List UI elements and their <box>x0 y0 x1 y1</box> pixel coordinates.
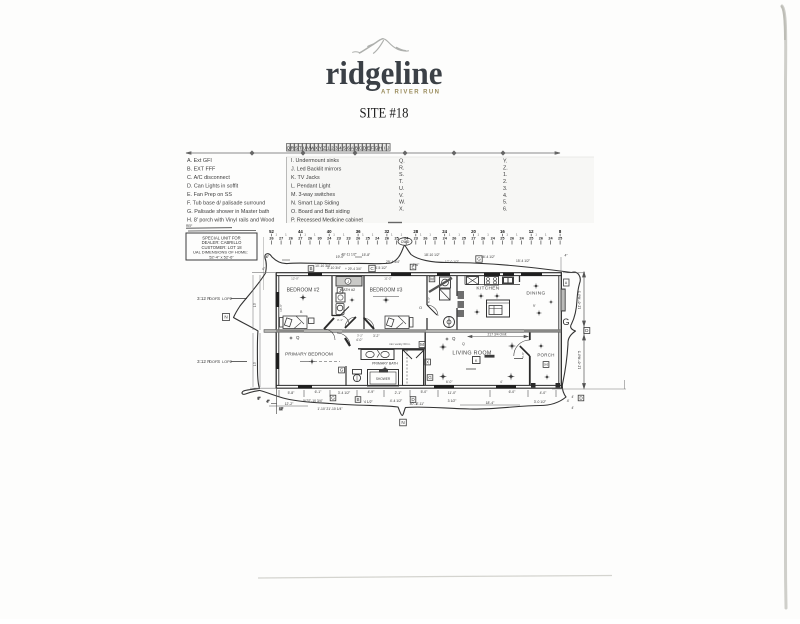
svg-text:6'-0": 6'-0" <box>446 380 453 384</box>
svg-text:26: 26 <box>308 236 312 240</box>
svg-text:I. Undermount sinks: I. Undermount sinks <box>291 158 339 164</box>
svg-text:O: O <box>419 305 422 310</box>
svg-text:E. Fan Prep on SS: E. Fan Prep on SS <box>187 192 232 198</box>
svg-text:15'-8": 15'-8" <box>362 253 371 257</box>
svg-text:J: J <box>347 280 349 284</box>
svg-text:27: 27 <box>279 236 283 240</box>
svg-text:AT RIVER RUN: AT RIVER RUN <box>381 90 441 96</box>
svg-text:4'-4 1/2": 4'-4 1/2" <box>390 399 403 403</box>
svg-text:13': 13' <box>253 303 257 308</box>
svg-text:4': 4' <box>572 395 575 399</box>
svg-text:3'-1": 3'-1" <box>337 318 343 322</box>
svg-text:A. Ext GFI: A. Ext GFI <box>187 158 212 164</box>
svg-text:G: G <box>331 396 335 401</box>
svg-text:6.: 6. <box>503 206 508 212</box>
svg-text:12: 12 <box>529 229 534 234</box>
svg-text:4.: 4. <box>503 193 508 199</box>
svg-text:L. Pendant Light: L. Pendant Light <box>291 184 331 190</box>
svg-text:X.: X. <box>399 206 404 212</box>
svg-text:I: I <box>384 146 385 151</box>
svg-text:5'-8": 5'-8" <box>288 391 296 395</box>
svg-text:H: H <box>544 362 547 367</box>
svg-text:H: H <box>379 146 382 151</box>
svg-text:+ 29'-4 3/4": + 29'-4 3/4" <box>345 267 363 271</box>
svg-text:P. Recessed Medicine cabinet: P. Recessed Medicine cabinet <box>291 218 363 224</box>
svg-text:H. 8' porch with Vinyl rails a: H. 8' porch with Vinyl rails and Wood <box>187 218 274 224</box>
svg-text:5'-0": 5'-0" <box>421 390 429 394</box>
svg-text:5/'37'-10 3/4": 5/'37'-10 3/4" <box>303 399 323 403</box>
svg-text:T: T <box>299 146 302 151</box>
svg-text:23: 23 <box>346 236 350 240</box>
svg-text:11'-2": 11'-2" <box>384 277 391 281</box>
svg-text:C. A/C disconnect: C. A/C disconnect <box>187 175 230 181</box>
svg-text:SHOWER: SHOWER <box>376 377 391 381</box>
svg-text:4': 4' <box>567 399 570 403</box>
svg-text:N. Smart Lap Siding: N. Smart Lap Siding <box>291 201 339 207</box>
svg-text:26: 26 <box>289 236 293 240</box>
svg-text:12'-2": 12'-2" <box>285 402 294 406</box>
svg-text:S: S <box>217 359 220 364</box>
svg-text:24: 24 <box>442 229 447 234</box>
svg-text:30: 30 <box>317 236 321 240</box>
svg-text:O. Board and Batt siding: O. Board and Batt siding <box>291 209 350 215</box>
svg-text:S.: S. <box>399 172 404 178</box>
svg-text:25: 25 <box>366 236 370 240</box>
svg-text:R: R <box>291 146 294 151</box>
svg-text:F. Tub base d/ palisade surrou: F. Tub base d/ palisade surround <box>187 201 265 207</box>
svg-text:40: 40 <box>327 229 332 234</box>
svg-text:S: S <box>217 296 220 301</box>
svg-text:4'-0": 4'-0" <box>540 391 548 395</box>
svg-text:CWD: CWD <box>401 240 410 244</box>
svg-text:18'-4": 18'-4" <box>486 401 495 405</box>
svg-text:C: C <box>359 146 362 151</box>
svg-text:SITE #18: SITE #18 <box>360 106 409 122</box>
svg-text:G: G <box>428 375 432 380</box>
svg-text:Q: Q <box>462 342 465 346</box>
svg-text:S: S <box>295 146 298 151</box>
svg-text:10'-6": 10'-6" <box>279 304 283 312</box>
svg-text:11'-6" Ref 5: 11'-6" Ref 5 <box>578 291 582 309</box>
svg-text:25: 25 <box>558 236 562 240</box>
svg-text:26: 26 <box>423 236 427 240</box>
svg-text:A: A <box>351 146 354 151</box>
svg-text:B: B <box>356 397 359 402</box>
svg-text:36: 36 <box>356 229 361 234</box>
svg-text:3'-0 1/2": 3'-0 1/2" <box>534 400 547 404</box>
svg-text:M: M <box>430 277 434 282</box>
svg-text:2.: 2. <box>503 179 508 185</box>
svg-text:12'-0": 12'-0" <box>291 277 299 281</box>
svg-text:23: 23 <box>414 236 418 240</box>
svg-text:2'-1": 2'-1" <box>395 391 403 395</box>
svg-text:Q.: Q. <box>399 159 405 165</box>
svg-text:KITCHEN: KITCHEN <box>476 286 499 292</box>
svg-text:8": 8" <box>258 397 261 401</box>
svg-text:16: 16 <box>500 229 505 234</box>
svg-text:U: U <box>303 146 306 151</box>
svg-text:3'-10 3/4": 3'-10 3/4" <box>327 266 342 270</box>
svg-text:16'-4 1/2": 16'-4 1/2" <box>481 255 496 259</box>
svg-text:N: N <box>401 420 404 425</box>
svg-text:29'-4 3/4": 29'-4 3/4" <box>386 260 401 264</box>
svg-text:52: 52 <box>269 229 274 234</box>
svg-text:M. 3-way switches: M. 3-way switches <box>291 192 335 198</box>
svg-text:X: X <box>315 146 318 151</box>
svg-text:52'-4" x 52'-6": 52'-4" x 52'-6" <box>209 254 234 259</box>
svg-text:4'-5 1/2": 4'-5 1/2" <box>375 266 388 270</box>
svg-text:26: 26 <box>385 236 389 240</box>
svg-text:25: 25 <box>500 236 504 240</box>
svg-text:LOPE: LOPE <box>222 360 233 364</box>
svg-text:Z.: Z. <box>503 165 508 171</box>
svg-text:G. Palisade shower in Master b: G. Palisade shower in Master bath <box>187 209 269 215</box>
svg-text:6'-1": 6'-1" <box>315 390 323 394</box>
svg-text:E: E <box>367 146 370 151</box>
svg-text:217 3/4 Omit: 217 3/4 Omit <box>488 333 507 337</box>
svg-text:DINING: DINING <box>526 291 545 297</box>
svg-text:Z: Z <box>323 146 326 151</box>
svg-text:25: 25 <box>529 236 533 240</box>
svg-text:J: J <box>387 146 389 151</box>
svg-text:26: 26 <box>269 236 273 240</box>
svg-text:T.: T. <box>399 179 403 185</box>
svg-text:REF: REF <box>186 224 192 228</box>
svg-text:V.: V. <box>399 193 404 199</box>
svg-text:20: 20 <box>471 229 476 234</box>
svg-text:4'-9": 4'-9" <box>368 390 376 394</box>
svg-text:K. TV Jacks: K. TV Jacks <box>291 175 320 181</box>
svg-text:B: B <box>355 146 358 151</box>
svg-text:6'-8": 6'-8" <box>521 352 525 358</box>
svg-text:B. EXT FFF: B. EXT FFF <box>187 167 216 173</box>
svg-text:12': 12' <box>279 407 284 411</box>
svg-text:5'-6": 5'-6" <box>427 297 431 303</box>
svg-text:4'-0": 4'-0" <box>356 338 363 342</box>
svg-text:26: 26 <box>539 236 543 240</box>
svg-text:13': 13' <box>253 362 257 367</box>
svg-text:11'-6" Ref 5: 11'-6" Ref 5 <box>578 351 582 369</box>
svg-text:26: 26 <box>510 236 514 240</box>
svg-text:'4 1/2": '4 1/2" <box>363 400 373 404</box>
svg-text:27: 27 <box>298 236 302 240</box>
svg-text:25: 25 <box>462 236 466 240</box>
svg-text:N: N <box>224 315 227 320</box>
svg-text:PRIMARY BATH: PRIMARY BATH <box>372 362 398 366</box>
svg-text:9': 9' <box>533 304 536 308</box>
svg-text:26: 26 <box>481 236 485 240</box>
svg-text:F: F <box>371 146 374 151</box>
svg-text:19'-0": 19'-0" <box>336 255 345 259</box>
svg-text:E: E <box>411 265 414 270</box>
svg-text:32: 32 <box>385 229 390 234</box>
svg-text:1'-10' 21'-10 1/4": 1'-10' 21'-10 1/4" <box>317 407 343 411</box>
svg-text:G: G <box>340 368 344 373</box>
svg-text:U.: U. <box>399 186 404 192</box>
svg-text:4': 4' <box>500 380 503 384</box>
svg-text:25: 25 <box>394 236 398 240</box>
svg-text:3 1/2": 3 1/2" <box>448 399 458 403</box>
svg-text:23: 23 <box>337 236 341 240</box>
svg-text:W.: W. <box>399 200 405 206</box>
svg-text:G: G <box>562 317 569 327</box>
svg-text:3.: 3. <box>503 186 508 192</box>
svg-text:Y.: Y. <box>503 159 507 165</box>
svg-text:25: 25 <box>433 236 437 240</box>
svg-text:Q: Q <box>452 336 456 341</box>
svg-text:26: 26 <box>356 236 360 240</box>
svg-text:5.: 5. <box>503 200 508 206</box>
svg-text:6'-0": 6'-0" <box>509 390 517 394</box>
svg-text:ridgeline: ridgeline <box>326 56 443 92</box>
svg-text:M: M <box>420 342 424 347</box>
svg-text:26: 26 <box>452 236 456 240</box>
svg-text:J: J <box>339 288 341 293</box>
svg-text:15'-4 1/2": 15'-4 1/2" <box>516 259 531 263</box>
svg-text:Q: Q <box>296 335 300 340</box>
svg-text:44: 44 <box>298 229 303 234</box>
svg-text:17'-0 1/2": 17'-0 1/2" <box>445 260 460 264</box>
svg-text:28: 28 <box>413 229 418 234</box>
svg-text:R.: R. <box>399 165 404 171</box>
svg-text:11'-0": 11'-0" <box>448 391 457 395</box>
svg-text:PORCH: PORCH <box>537 353 554 358</box>
svg-text:J. Led Backlit mirrors: J. Led Backlit mirrors <box>291 167 342 173</box>
svg-text:3'-2": 3'-2" <box>373 334 380 338</box>
svg-text:4": 4" <box>267 400 270 404</box>
svg-text:4': 4' <box>572 406 575 410</box>
svg-text:D: D <box>363 146 366 151</box>
svg-text:PRIMARY BEDROOM: PRIMARY BEDROOM <box>285 352 333 358</box>
svg-text:3'-4 1/2": 3'-4 1/2" <box>338 391 351 395</box>
svg-text:18'-10 1/2": 18'-10 1/2" <box>424 253 441 257</box>
svg-text:BEDROOM #2: BEDROOM #2 <box>287 288 320 294</box>
svg-text:1.: 1. <box>503 172 508 178</box>
svg-text:D. Can Lights in soffit: D. Can Lights in soffit <box>187 184 239 190</box>
svg-text:LOPE: LOPE <box>222 297 233 301</box>
svg-text:X: X <box>426 360 429 365</box>
svg-text:B: B <box>309 266 312 271</box>
svg-text:3'-2": 3'-2" <box>357 334 363 338</box>
svg-text:27: 27 <box>471 236 475 240</box>
svg-text:G: G <box>477 257 481 262</box>
svg-text:min vanity 60 in.: min vanity 60 in. <box>389 342 411 346</box>
svg-text:Y: Y <box>319 146 322 151</box>
svg-text:BEDROOM #3: BEDROOM #3 <box>370 288 403 294</box>
